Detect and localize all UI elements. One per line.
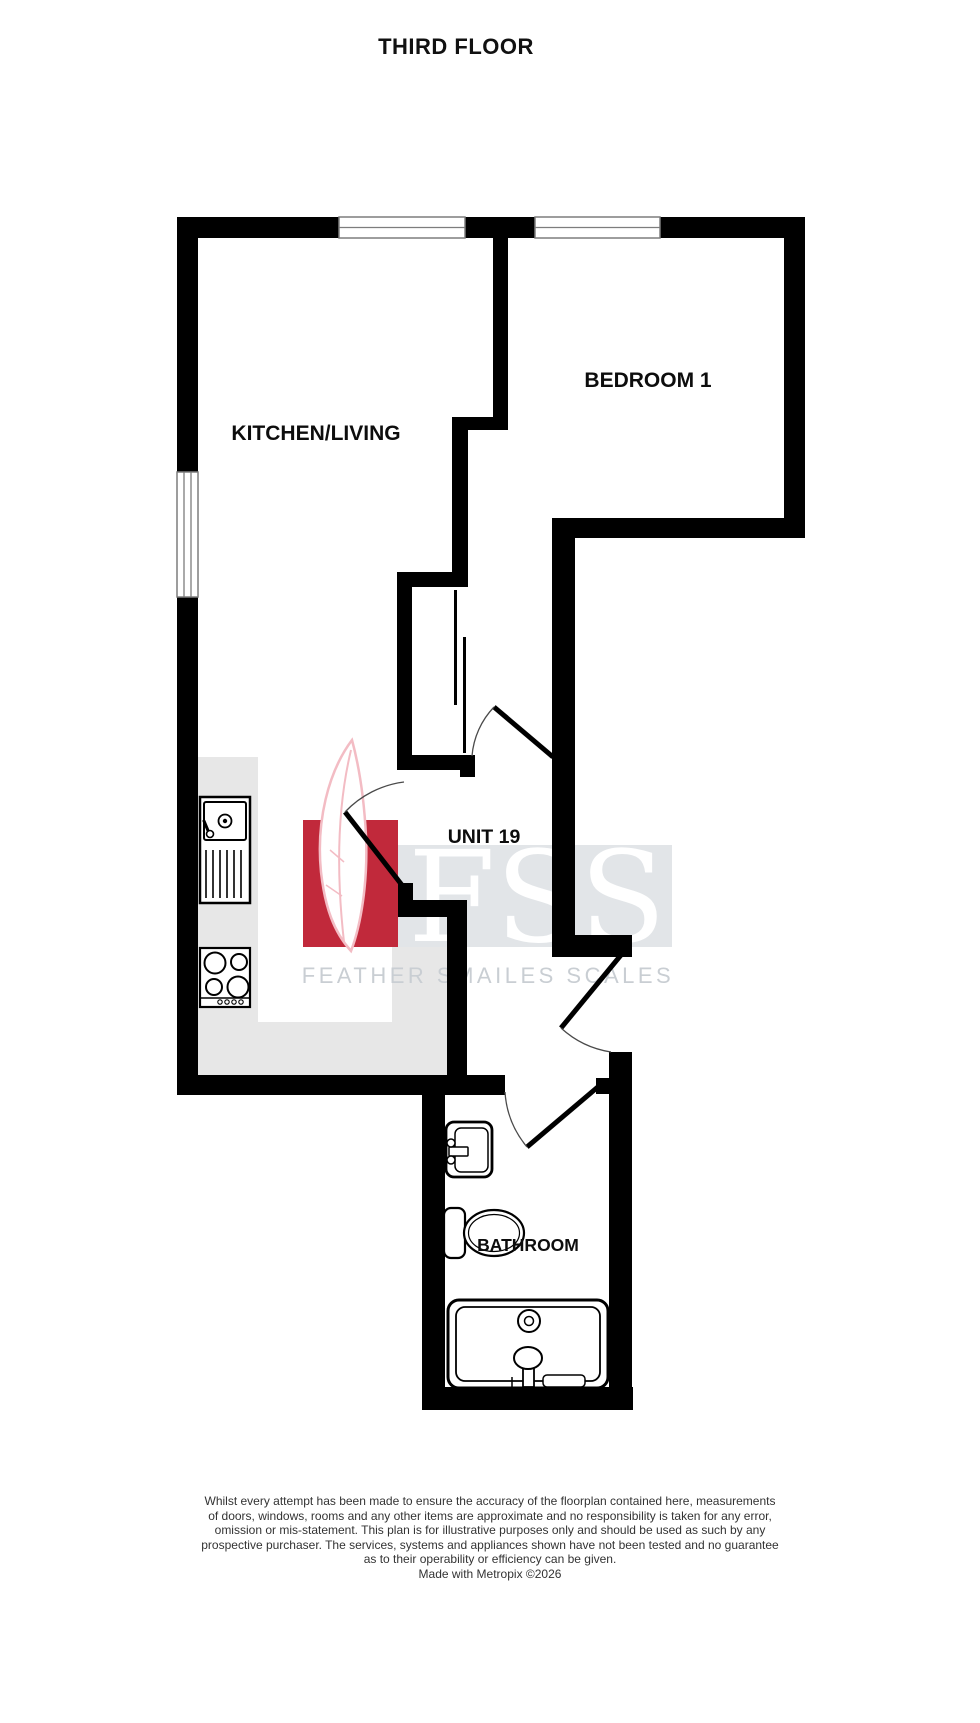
- window-left: [177, 472, 198, 597]
- watermark-caption: FEATHER SMAILES SCALES: [302, 963, 674, 988]
- floorplan-drawing: FSS FEATHER SMAILES SCALES: [0, 0, 980, 1723]
- disclaimer-line: omission or mis-statement. This plan is …: [0, 1523, 980, 1538]
- kitchen-sink: [200, 797, 250, 903]
- unit-entrance-door: [472, 707, 553, 757]
- windows: [177, 217, 660, 597]
- bathtub: [448, 1300, 608, 1388]
- room-label-unit: UNIT 19: [448, 826, 521, 848]
- disclaimer-line: of doors, windows, rooms and any other i…: [0, 1509, 980, 1524]
- room-label-bathroom: BATHROOM: [477, 1235, 579, 1255]
- disclaimer: Whilst every attempt has been made to en…: [0, 1494, 980, 1582]
- disclaimer-line: Whilst every attempt has been made to en…: [0, 1494, 980, 1509]
- window-top-right: [535, 217, 660, 238]
- room-label-bedroom: BEDROOM 1: [584, 369, 712, 392]
- wash-basin: [446, 1122, 492, 1177]
- disclaimer-line: prospective purchaser. The services, sys…: [0, 1538, 980, 1553]
- bathroom-door: [505, 1086, 599, 1147]
- floorplan-page: THIRD FLOOR FSS FEATHER SMAILES SCALES: [0, 0, 980, 1723]
- room-label-kitchen-living: KITCHEN/LIVING: [231, 422, 400, 445]
- cupboard-doors: [456, 590, 465, 753]
- disclaimer-line: as to their operability or efficiency ca…: [0, 1552, 980, 1567]
- hob: [200, 948, 250, 1007]
- metropix-credit: Made with Metropix ©2026: [0, 1567, 980, 1582]
- window-top-left: [339, 217, 465, 238]
